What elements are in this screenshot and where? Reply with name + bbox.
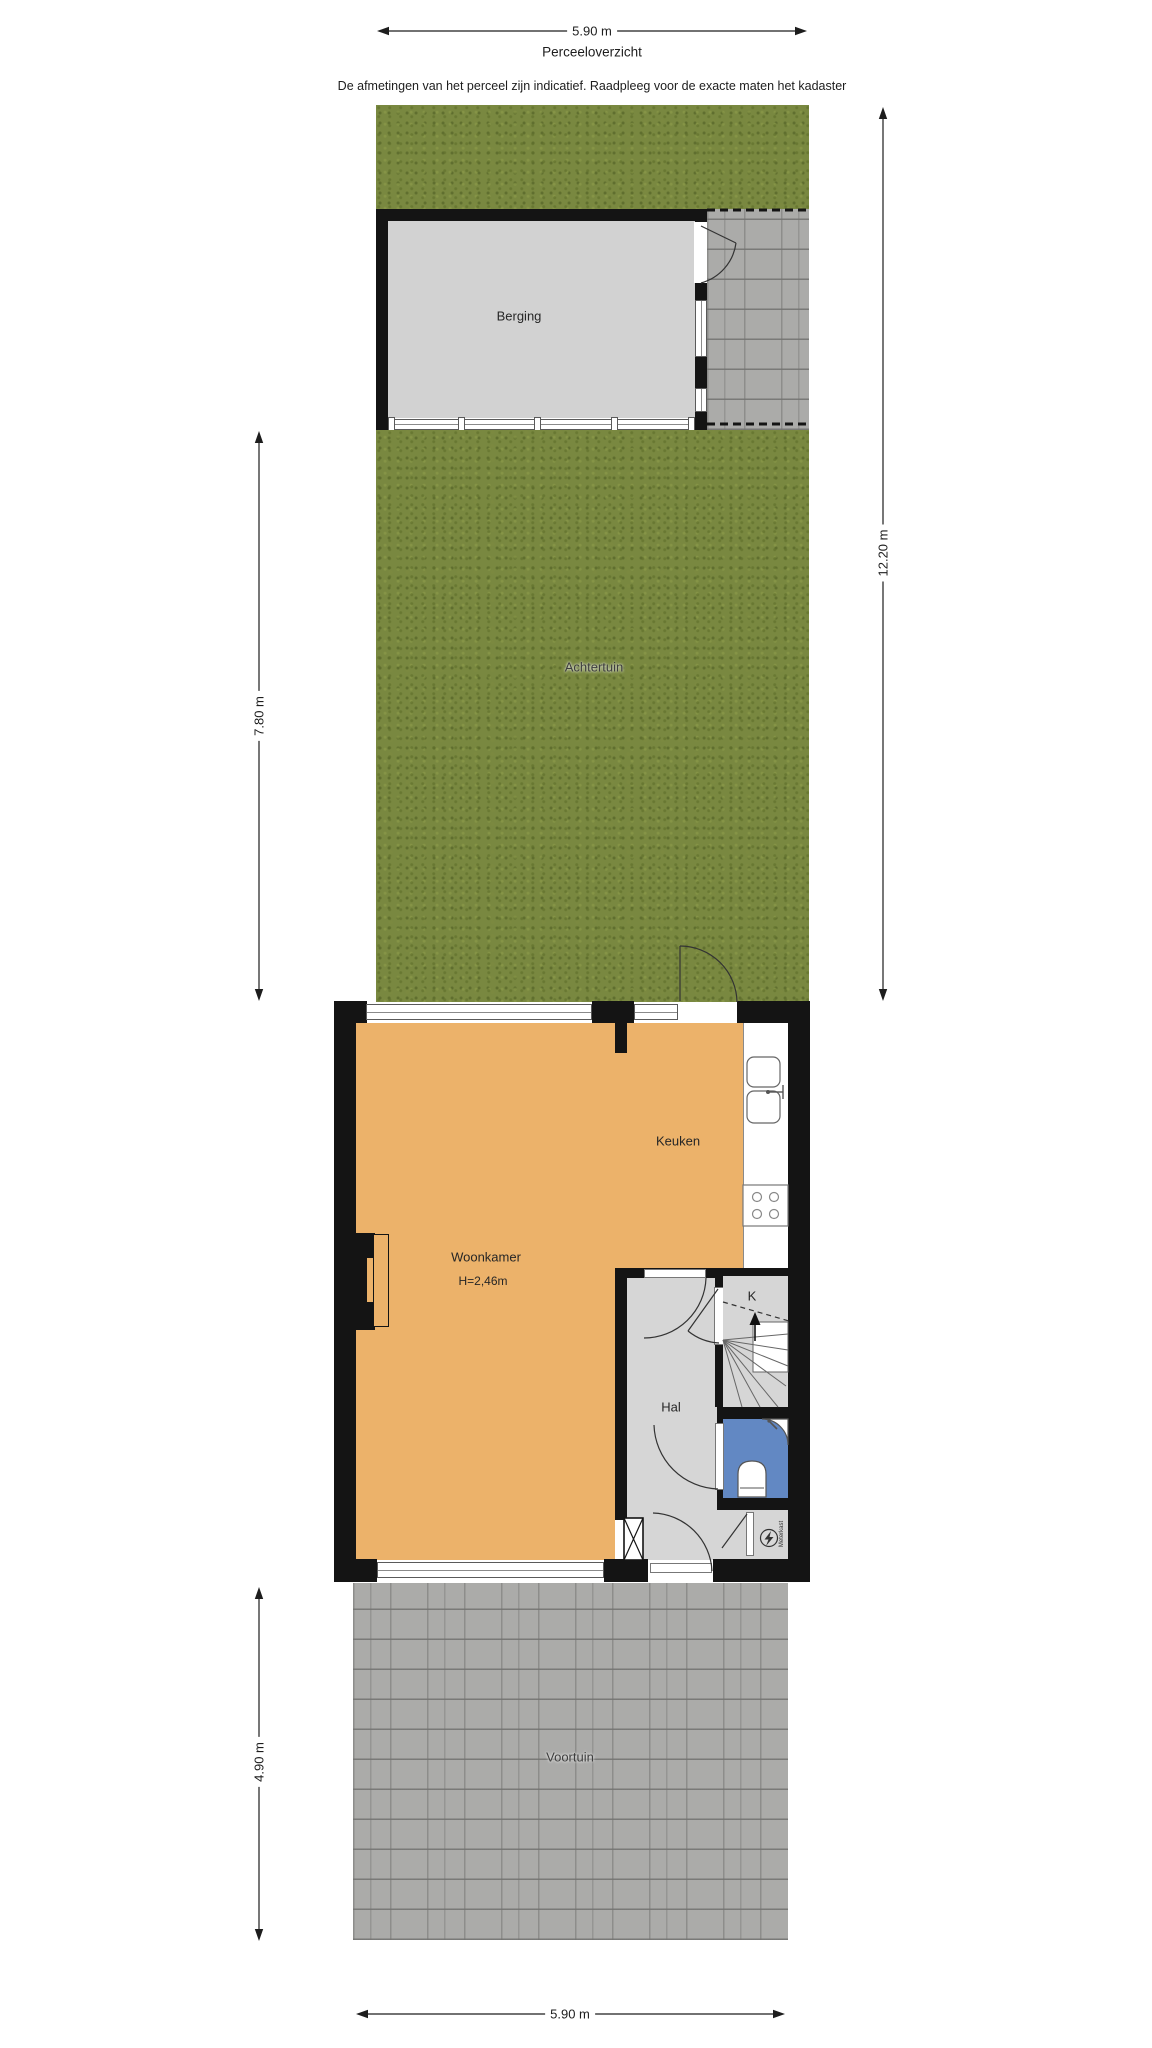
dim-backyard-depth-label: 7.80 m xyxy=(251,691,268,741)
dim-parcel-depth-label: 12.20 m xyxy=(875,525,892,582)
bathroom-door-swing xyxy=(654,1425,718,1489)
area-label-voortuin: Voortuin xyxy=(546,1750,594,1765)
room-label-keuken: Keuken xyxy=(656,1134,700,1149)
dim-bottom-width-label: 5.90 m xyxy=(545,2006,595,2023)
electric-meter-icon xyxy=(761,1530,778,1547)
room-label-meterkast: Meterkast xyxy=(779,1521,785,1547)
toilet-icon xyxy=(738,1461,766,1497)
front-door-swing xyxy=(653,1513,712,1571)
plan-linework xyxy=(0,0,1152,2048)
stairs-door-swing xyxy=(688,1289,719,1343)
page-title: Perceeloverzicht xyxy=(542,45,642,60)
disclaimer-text: De afmetingen van het perceel zijn indic… xyxy=(338,79,847,93)
room-label-ceiling-height: H=2,46m xyxy=(458,1274,507,1288)
dim-top-width-label: 5.90 m xyxy=(567,23,617,40)
dim-frontyard-depth-label: 4.90 m xyxy=(251,1737,268,1787)
room-label-woonkamer: Woonkamer xyxy=(451,1250,521,1265)
cooktop-icon xyxy=(743,1185,788,1226)
corner-basin-icon xyxy=(762,1419,788,1445)
garden-door-swing xyxy=(680,946,737,1002)
floorplan-page: 5.90 m Perceeloverzicht De afmetingen va… xyxy=(0,0,1152,2048)
front-fixed-panel xyxy=(624,1518,643,1560)
kitchen-sink xyxy=(747,1057,783,1123)
staircase xyxy=(723,1302,789,1407)
room-label-closet: K xyxy=(748,1289,757,1304)
room-label-berging: Berging xyxy=(497,309,542,324)
hall-door-swing xyxy=(644,1278,706,1338)
meterkast-door-line xyxy=(722,1514,747,1548)
area-label-achtertuin: Achtertuin xyxy=(565,660,624,675)
room-label-hal: Hal xyxy=(661,1400,681,1415)
berging-door-swing xyxy=(701,226,736,283)
